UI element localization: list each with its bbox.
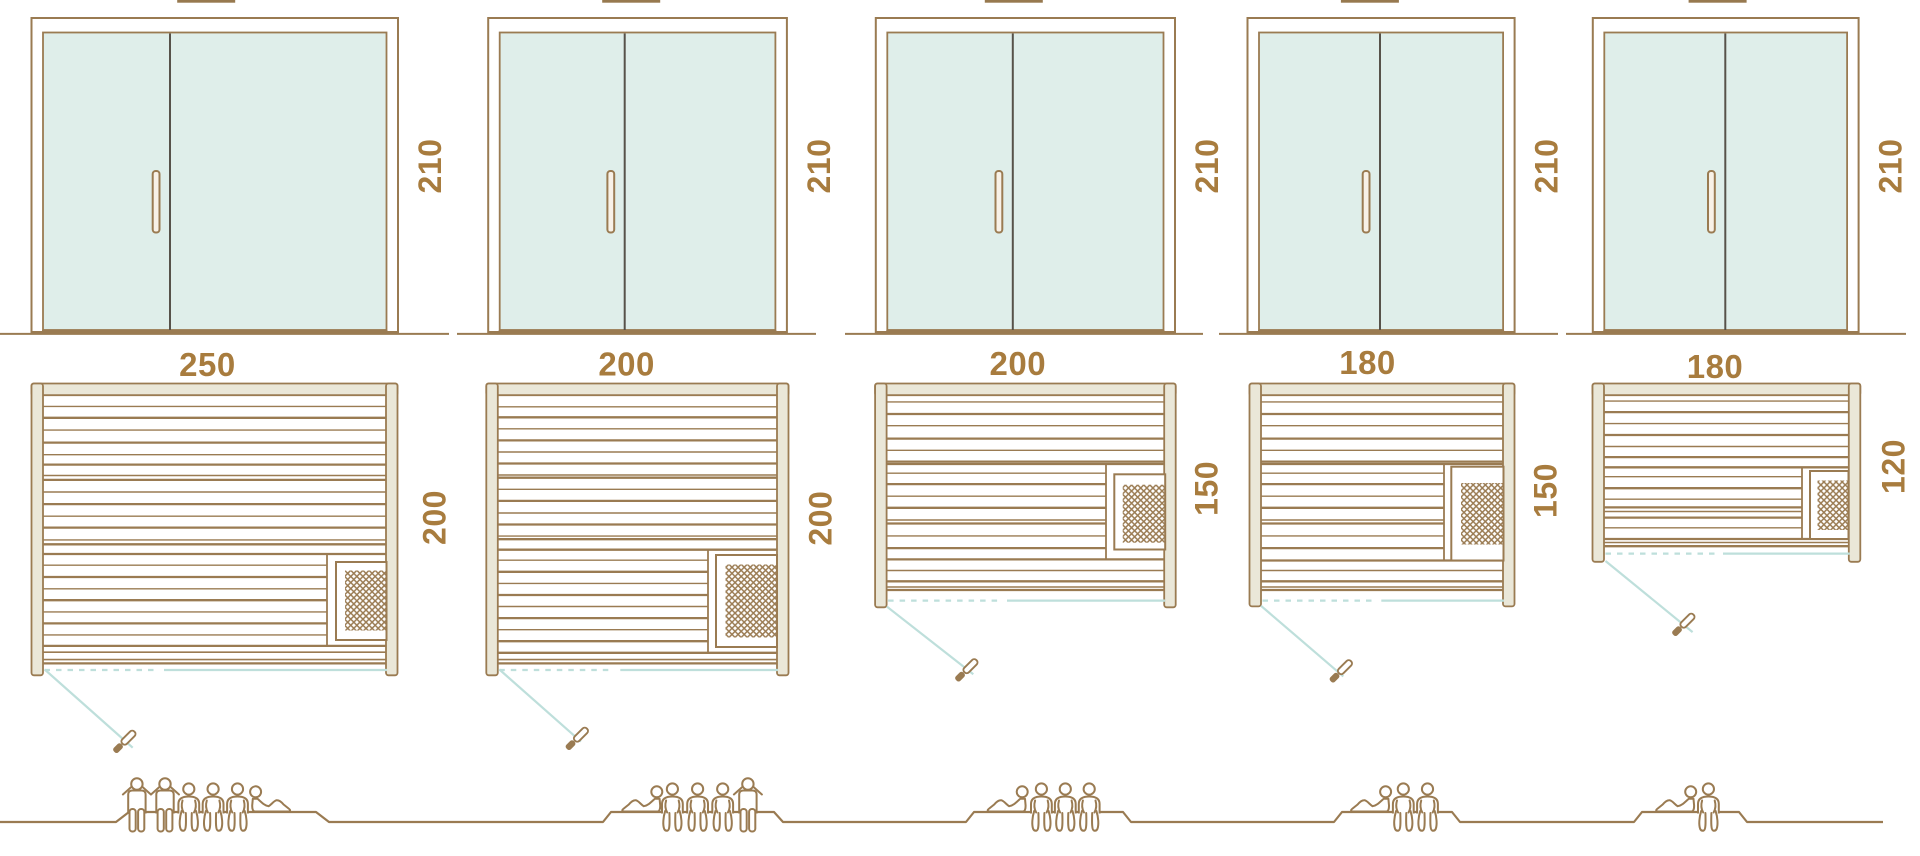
svg-text:250: 250 xyxy=(179,346,236,383)
svg-text:210: 210 xyxy=(412,139,448,194)
svg-text:150: 150 xyxy=(1189,461,1225,516)
svg-text:210: 210 xyxy=(1873,139,1909,194)
svg-text:120: 120 xyxy=(1876,439,1912,494)
svg-text:200: 200 xyxy=(598,345,655,382)
svg-text:210: 210 xyxy=(1529,139,1565,194)
svg-text:210: 210 xyxy=(801,139,837,194)
svg-text:180: 180 xyxy=(1687,348,1744,385)
svg-text:200: 200 xyxy=(417,490,453,545)
svg-text:150: 150 xyxy=(1527,463,1563,518)
svg-text:180: 180 xyxy=(1339,344,1396,381)
svg-text:200: 200 xyxy=(990,345,1047,382)
svg-text:210: 210 xyxy=(1189,139,1225,194)
svg-text:200: 200 xyxy=(803,491,839,546)
